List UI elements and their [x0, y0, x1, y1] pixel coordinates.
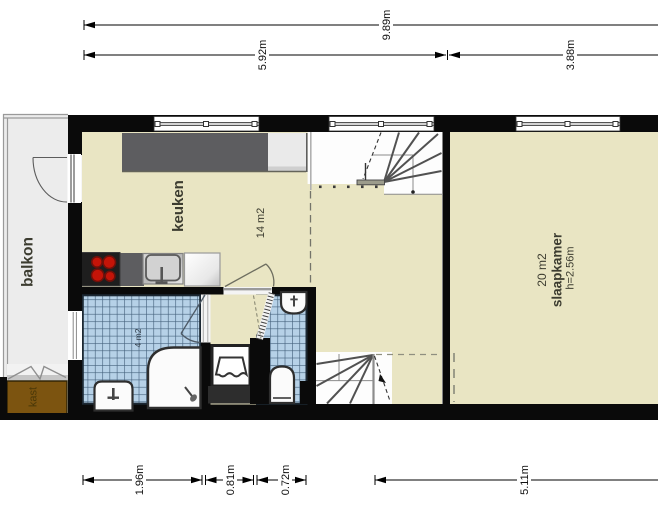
svg-text:0.72m: 0.72m — [280, 465, 292, 496]
svg-text:4 m2: 4 m2 — [133, 328, 143, 347]
svg-text:kast: kast — [28, 387, 40, 407]
svg-text:1.96m: 1.96m — [134, 465, 146, 496]
svg-text:3.88m: 3.88m — [565, 40, 577, 71]
svg-text:5.11m: 5.11m — [519, 465, 531, 495]
svg-text:5.92m: 5.92m — [257, 40, 269, 71]
svg-text:9.89m: 9.89m — [381, 10, 393, 41]
svg-text:20 m2: 20 m2 — [535, 253, 549, 287]
svg-text:h=2.56m: h=2.56m — [565, 246, 577, 289]
svg-text:0.81m: 0.81m — [225, 465, 237, 496]
svg-text:keuken: keuken — [170, 180, 187, 232]
svg-text:slaapkamer: slaapkamer — [550, 232, 565, 307]
svg-text:14 m2: 14 m2 — [255, 208, 267, 239]
svg-text:balkon: balkon — [20, 237, 37, 287]
